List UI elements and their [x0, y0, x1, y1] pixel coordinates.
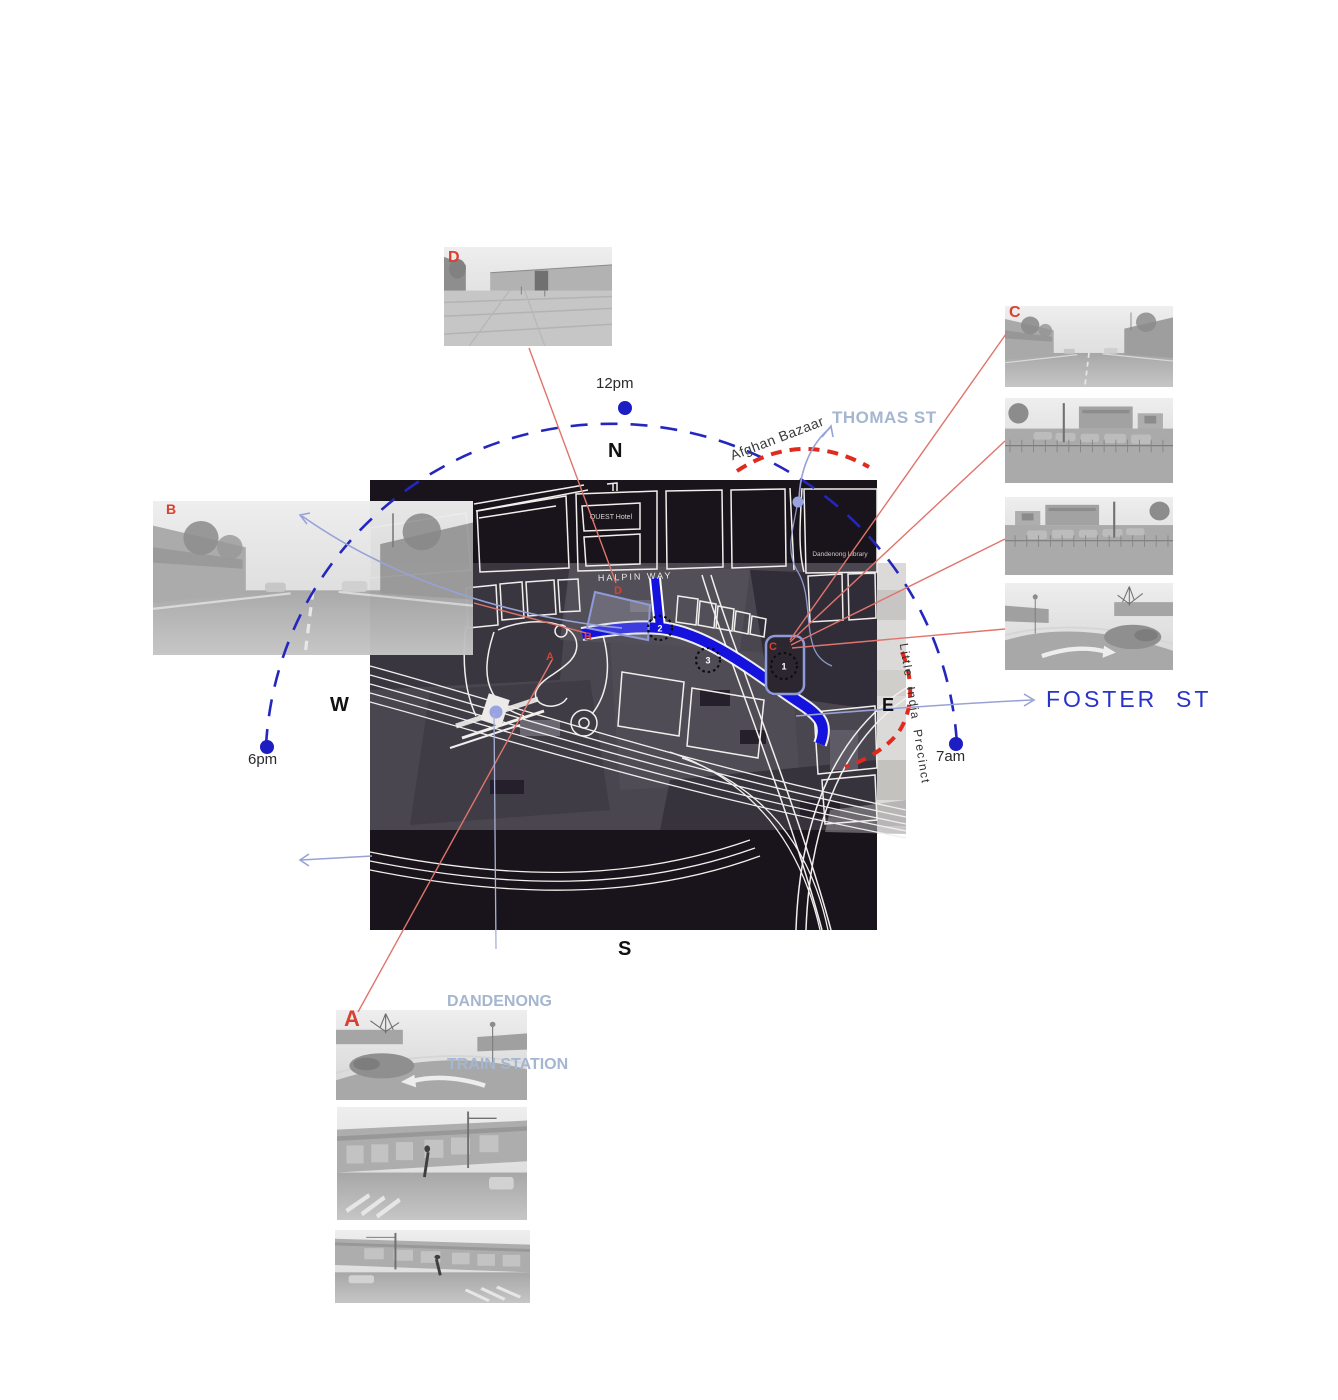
map-marker-a: A: [546, 651, 554, 663]
photo-c3-carpark: [1005, 497, 1173, 575]
train-station-label: DANDENONG TRAIN STATION: [447, 949, 568, 1117]
viewpoint-label-b: B: [166, 502, 176, 516]
photo-c2-carpark: [1005, 398, 1173, 483]
node-2-number: 2: [657, 624, 662, 634]
photo-c1-street: [1005, 306, 1173, 387]
station-node: [490, 706, 503, 719]
compass-west: W: [330, 694, 349, 717]
thomas-st-node: [793, 497, 804, 508]
node-3-number: 3: [705, 656, 710, 666]
compass-east: E: [882, 695, 894, 716]
viewpoint-label-c: C: [1009, 305, 1021, 321]
library-label: Dandenong Library: [812, 551, 868, 558]
foster-east-arrowhead: [1024, 694, 1034, 706]
map-marker-d: D: [614, 585, 622, 597]
sun-time-12pm: 12pm: [596, 375, 634, 392]
train-station-label-line1: DANDENONG: [447, 991, 568, 1012]
photo-a2-crossing: [337, 1107, 527, 1220]
sun-time-6pm: 6pm: [248, 751, 277, 768]
map-marker-b: B: [584, 631, 592, 643]
rail-west-arrow-line: [301, 856, 372, 860]
sun-time-7am: 7am: [936, 748, 965, 765]
viewpoint-label-a: A: [344, 1008, 360, 1030]
site-analysis-diagram: 2 3 1 D B A C QUEST Hotel Dandenong Libr…: [0, 0, 1338, 1400]
quest-hotel-label: QUEST Hotel: [590, 514, 633, 521]
compass-north: N: [608, 440, 622, 463]
rail-west-arrowhead: [300, 854, 309, 866]
train-station-label-line2: TRAIN STATION: [447, 1054, 568, 1075]
afghan-bazaar-label: Afghan Bazaar: [713, 407, 840, 469]
photo-d-plaza: [444, 247, 612, 346]
foster-st-label: FOSTER ST: [1046, 686, 1211, 713]
sun-12pm-dot: [618, 401, 632, 415]
viewpoint-label-d: D: [448, 250, 460, 266]
node-1-number: 1: [781, 662, 786, 672]
compass-south: S: [618, 938, 631, 961]
map-marker-c: C: [769, 641, 777, 653]
photo-a3-shops: [335, 1230, 530, 1303]
photo-c4-roundabout: [1005, 583, 1173, 670]
thomas-st-label: THOMAS ST: [832, 408, 937, 428]
photo-b-street: [153, 501, 473, 655]
